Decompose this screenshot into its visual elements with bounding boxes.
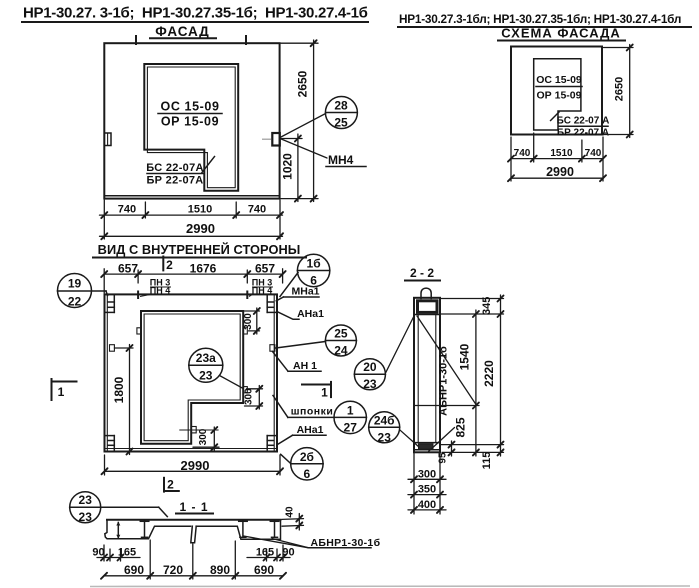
svg-text:1540: 1540 bbox=[457, 343, 471, 370]
svg-text:90: 90 bbox=[282, 547, 294, 559]
svg-text:ОР 15-09: ОР 15-09 bbox=[537, 90, 582, 102]
svg-text:23а: 23а bbox=[196, 351, 216, 365]
svg-text:6: 6 bbox=[304, 467, 311, 481]
svg-text:657: 657 bbox=[118, 262, 138, 276]
svg-text:НР1-30.27.3-1бл; НР1-30.27.35-: НР1-30.27.3-1бл; НР1-30.27.35-1бл; НР1-3… bbox=[399, 12, 681, 26]
svg-text:165: 165 bbox=[256, 547, 274, 559]
svg-text:23: 23 bbox=[363, 377, 377, 391]
svg-text:690: 690 bbox=[254, 563, 274, 577]
svg-text:1б: 1б bbox=[307, 257, 321, 271]
svg-text:300: 300 bbox=[418, 468, 436, 480]
svg-text:1: 1 bbox=[321, 386, 328, 400]
svg-text:300: 300 bbox=[244, 388, 255, 405]
svg-text:165: 165 bbox=[118, 547, 136, 559]
svg-text:720: 720 bbox=[163, 563, 183, 577]
svg-text:690: 690 bbox=[124, 563, 144, 577]
svg-text:300: 300 bbox=[198, 428, 209, 445]
svg-text:350: 350 bbox=[418, 484, 436, 496]
svg-text:2990: 2990 bbox=[181, 458, 210, 473]
svg-text:23: 23 bbox=[199, 369, 213, 383]
svg-text:25: 25 bbox=[334, 327, 348, 341]
svg-text:345: 345 bbox=[481, 297, 493, 315]
svg-text:300: 300 bbox=[243, 313, 254, 330]
svg-text:2: 2 bbox=[167, 478, 174, 492]
svg-text:95: 95 bbox=[438, 452, 449, 464]
svg-text:АНа1: АНа1 bbox=[297, 424, 324, 436]
svg-text:20: 20 bbox=[363, 360, 377, 374]
svg-text:23: 23 bbox=[378, 430, 392, 444]
svg-text:890: 890 bbox=[210, 563, 230, 577]
svg-text:23: 23 bbox=[79, 510, 93, 524]
svg-text:ОС 15-09: ОС 15-09 bbox=[536, 74, 582, 86]
svg-text:ФАСАД: ФАСАД bbox=[155, 24, 209, 39]
svg-text:1510: 1510 bbox=[550, 148, 573, 159]
svg-text:1: 1 bbox=[58, 385, 65, 399]
svg-text:2990: 2990 bbox=[546, 165, 574, 179]
svg-text:115: 115 bbox=[481, 452, 493, 470]
svg-text:740: 740 bbox=[514, 148, 531, 159]
svg-text:БР 22-07 А: БР 22-07 А bbox=[557, 128, 609, 139]
svg-text:2: 2 bbox=[166, 258, 173, 272]
svg-text:шпонки: шпонки bbox=[291, 406, 334, 418]
svg-text:2650: 2650 bbox=[296, 70, 310, 97]
svg-text:90: 90 bbox=[92, 547, 104, 559]
svg-text:19: 19 bbox=[68, 277, 82, 291]
svg-text:ОР 15-09: ОР 15-09 bbox=[161, 115, 219, 129]
svg-text:825: 825 bbox=[454, 417, 468, 437]
svg-text:1800: 1800 bbox=[112, 376, 126, 403]
svg-text:24: 24 bbox=[334, 344, 348, 358]
svg-text:23: 23 bbox=[79, 493, 93, 507]
svg-text:1510: 1510 bbox=[188, 204, 212, 216]
svg-text:28: 28 bbox=[334, 99, 348, 113]
svg-text:24б: 24б bbox=[374, 413, 395, 427]
svg-text:740: 740 bbox=[248, 204, 266, 216]
svg-text:25: 25 bbox=[334, 116, 348, 130]
svg-text:27: 27 bbox=[344, 420, 358, 434]
svg-text:АНа1: АНа1 bbox=[297, 308, 324, 320]
svg-text:СХЕМА ФАСАДА: СХЕМА ФАСАДА bbox=[501, 26, 621, 41]
svg-text:40: 40 bbox=[285, 506, 296, 518]
svg-text:2650: 2650 bbox=[614, 77, 626, 101]
svg-text:2220: 2220 bbox=[482, 360, 496, 387]
svg-text:АН 1: АН 1 bbox=[293, 360, 317, 372]
svg-text:1020: 1020 bbox=[281, 153, 295, 180]
svg-text:400: 400 bbox=[418, 499, 436, 511]
svg-text:БС 22-07 А: БС 22-07 А bbox=[557, 116, 610, 127]
svg-text:740: 740 bbox=[118, 204, 136, 216]
svg-text:6: 6 bbox=[310, 274, 317, 288]
svg-text:657: 657 bbox=[255, 262, 275, 276]
svg-text:2б: 2б bbox=[300, 450, 314, 464]
svg-text:ОС 15-09: ОС 15-09 bbox=[161, 100, 220, 114]
svg-text:МН4: МН4 bbox=[328, 153, 354, 167]
svg-text:БС 22-07А: БС 22-07А bbox=[146, 162, 204, 174]
svg-text:НР1-30.27. 3-1б; НР1-30.27.35: НР1-30.27. 3-1б; НР1-30.27.35-1б; НР1-30… bbox=[23, 5, 368, 22]
svg-text:БР 22-07А: БР 22-07А bbox=[146, 175, 203, 187]
svg-text:2 - 2: 2 - 2 bbox=[410, 266, 434, 280]
svg-text:2990: 2990 bbox=[186, 221, 215, 236]
svg-text:1676: 1676 bbox=[190, 262, 217, 276]
svg-text:22: 22 bbox=[68, 295, 82, 309]
svg-text:1: 1 bbox=[347, 403, 354, 417]
svg-text:ВИД С ВНУТРЕННЕЙ СТОРОНЫ: ВИД С ВНУТРЕННЕЙ СТОРОНЫ bbox=[98, 242, 301, 257]
svg-text:740: 740 bbox=[585, 148, 602, 159]
svg-text:1 - 1: 1 - 1 bbox=[179, 500, 208, 514]
